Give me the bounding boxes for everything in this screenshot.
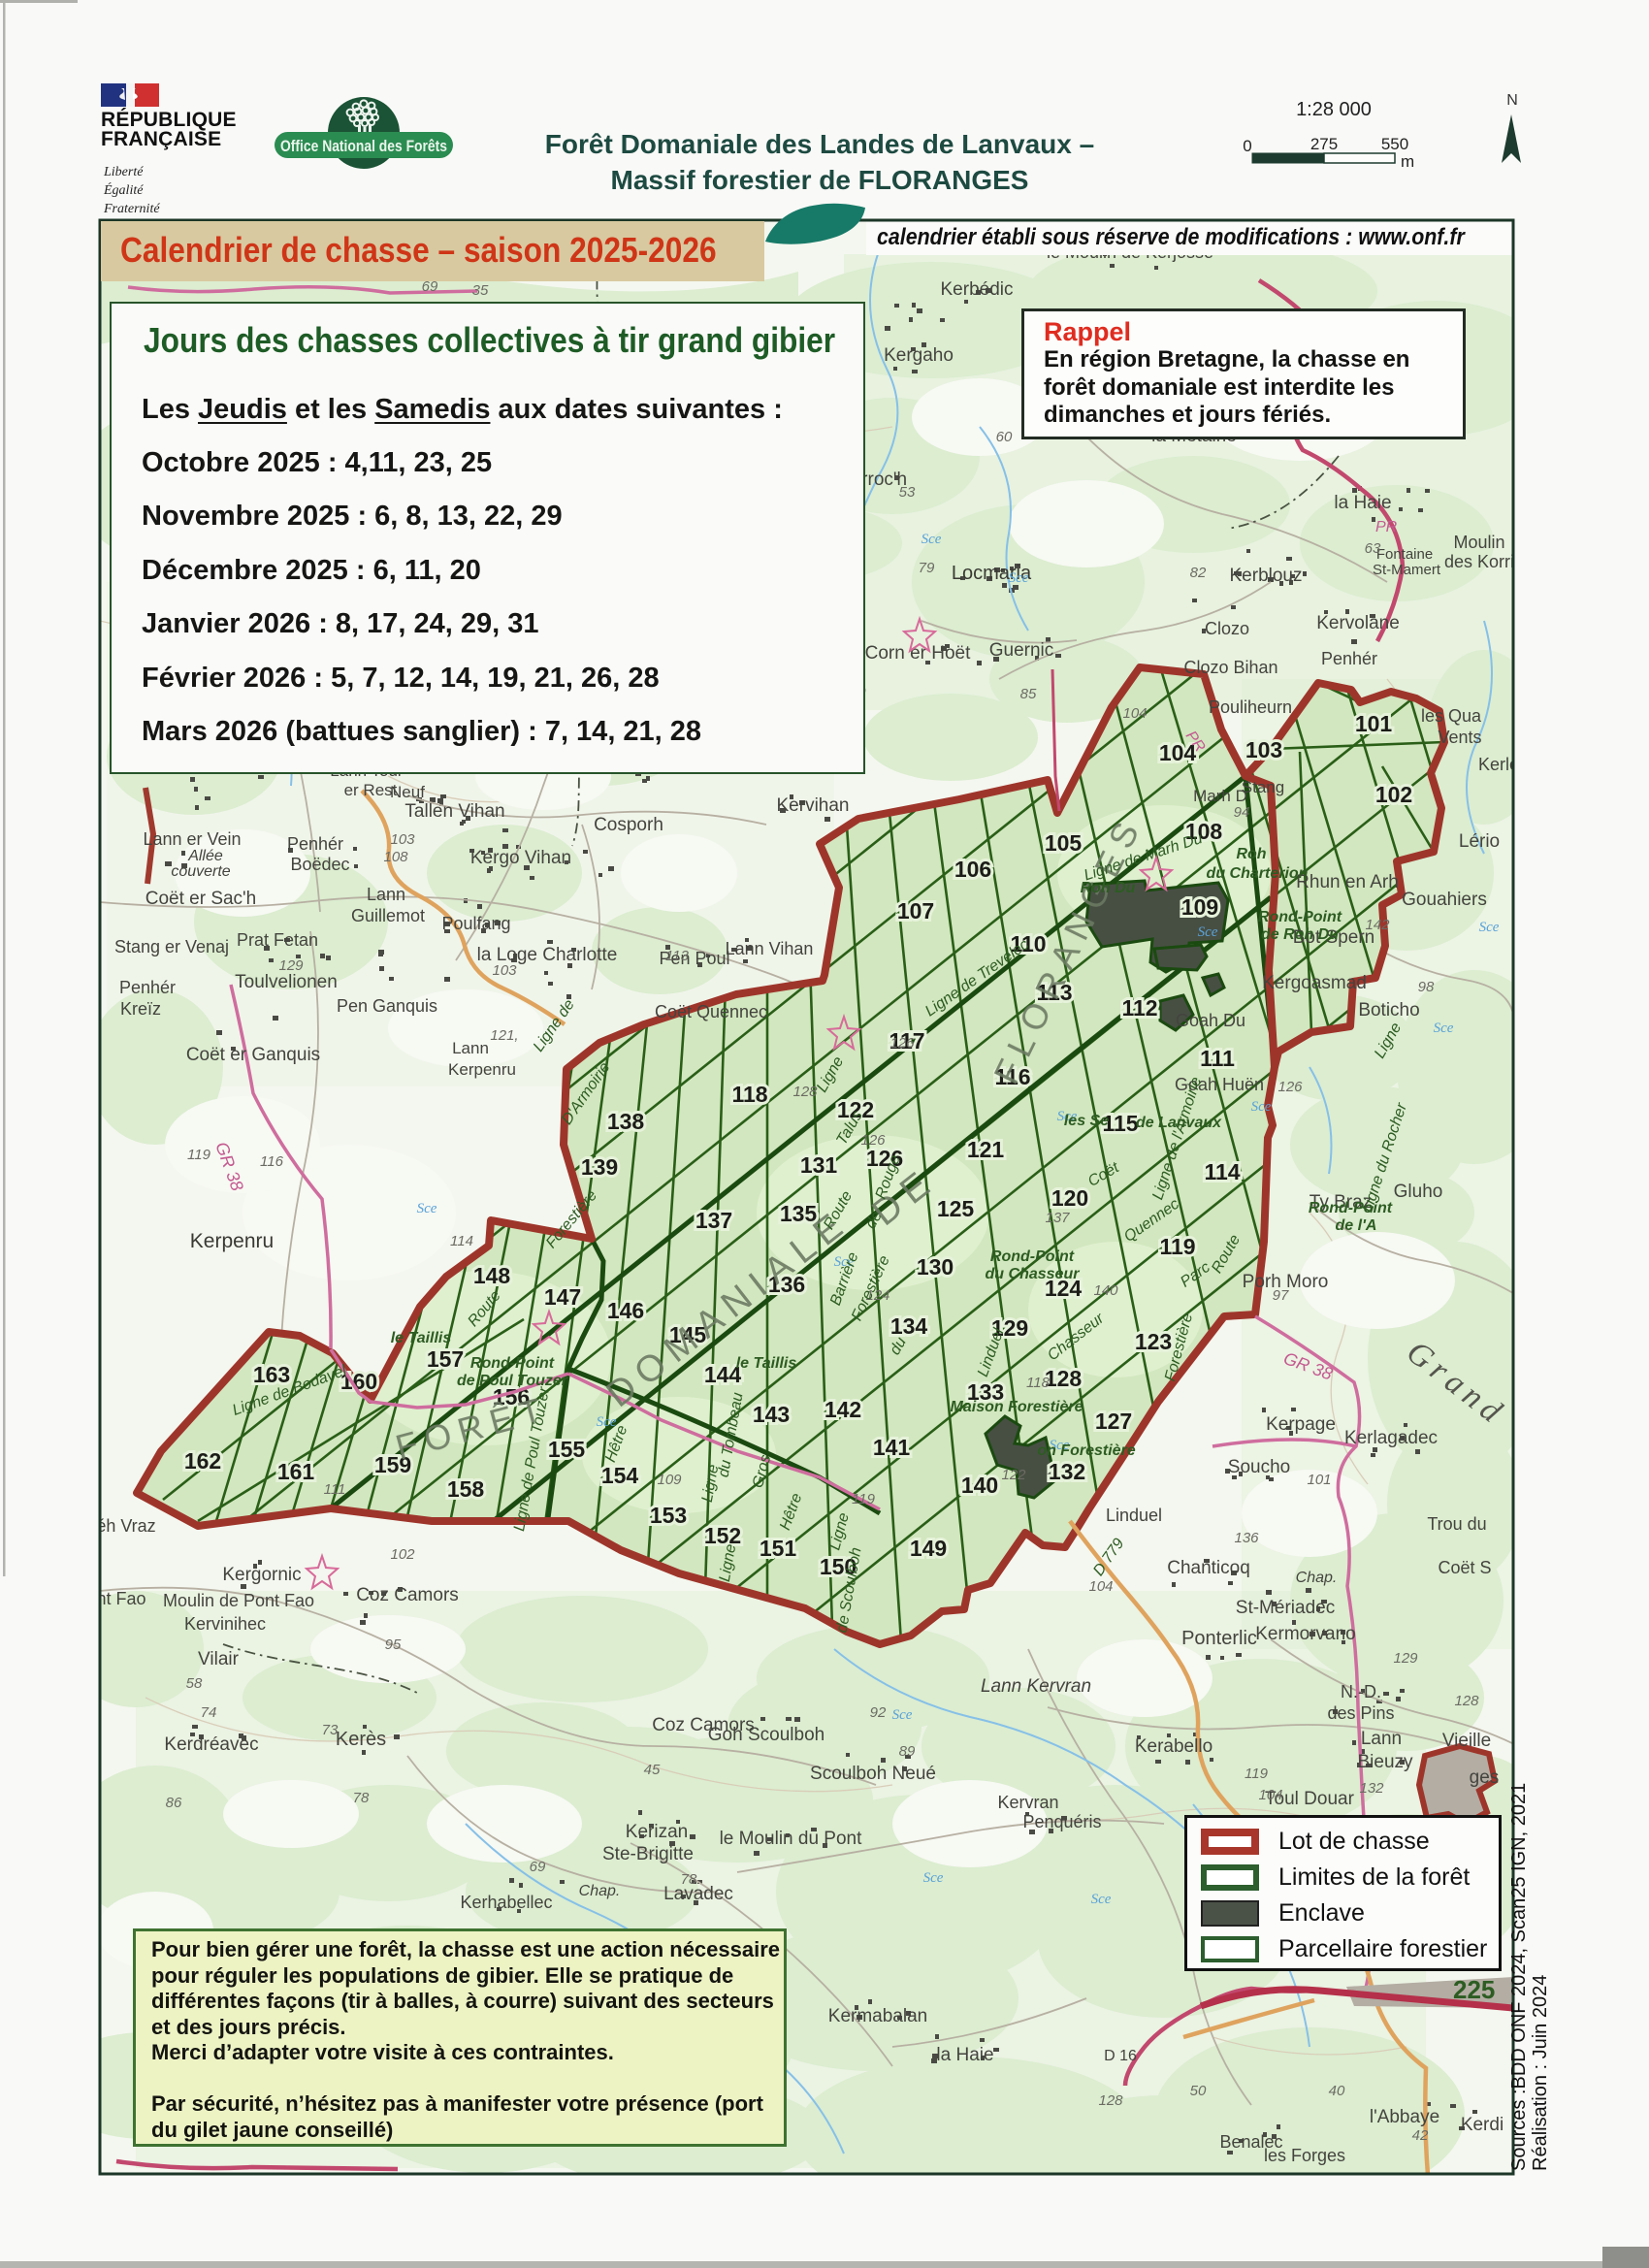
svg-text:éh Vraz: éh Vraz <box>96 1516 155 1536</box>
svg-text:le Taillis: le Taillis <box>391 1330 452 1346</box>
svg-text:Linduel: Linduel <box>1106 1506 1162 1525</box>
svg-text:50: 50 <box>1190 2083 1207 2099</box>
svg-text:58: 58 <box>186 1675 203 1692</box>
svg-text:Trou du: Trou du <box>1427 1514 1486 1534</box>
svg-text:ges: ges <box>1470 1767 1500 1788</box>
svg-text:103: 103 <box>390 831 415 848</box>
svg-text:225: 225 <box>1453 1975 1495 2004</box>
svg-text:Sce: Sce <box>1434 1021 1454 1036</box>
svg-text:la Haie: la Haie <box>1334 493 1391 513</box>
svg-text:Kergaho: Kergaho <box>884 345 954 366</box>
svg-text:Sce: Sce <box>417 1201 437 1216</box>
svg-text:le Moulin du Pont: le Moulin du Pont <box>720 1829 863 1849</box>
svg-text:Chap.: Chap. <box>1296 1570 1338 1586</box>
svg-text:161: 161 <box>277 1459 315 1484</box>
svg-text:154: 154 <box>601 1463 639 1488</box>
svg-text:Sce: Sce <box>1198 924 1218 940</box>
svg-text:D 16: D 16 <box>1104 2048 1137 2064</box>
svg-text:151: 151 <box>760 1536 797 1561</box>
svg-text:Lavadec: Lavadec <box>663 1884 733 1904</box>
svg-text:101: 101 <box>1355 711 1393 736</box>
svg-text:158: 158 <box>447 1476 485 1502</box>
svg-text:103: 103 <box>1245 737 1282 762</box>
svg-text:116: 116 <box>260 1153 284 1170</box>
svg-text:53: 53 <box>899 484 916 501</box>
svg-text:Lann: Lann <box>1361 1729 1402 1749</box>
svg-text:Sce: Sce <box>1479 920 1500 935</box>
svg-text:Kreïz: Kreïz <box>120 999 161 1019</box>
svg-text:Kergornic: Kergornic <box>222 1565 301 1585</box>
svg-text:Stang: Stang <box>1242 778 1284 796</box>
svg-text:162: 162 <box>184 1448 221 1474</box>
svg-text:l'Abbaye: l'Abbaye <box>1370 2107 1439 2127</box>
svg-text:Kerdi: Kerdi <box>1461 2115 1503 2135</box>
svg-text:Sce: Sce <box>921 532 942 547</box>
svg-text:140: 140 <box>1093 1282 1118 1299</box>
svg-text:119: 119 <box>852 1491 876 1507</box>
svg-text:Ponterlic: Ponterlic <box>1181 1628 1257 1649</box>
svg-text:42: 42 <box>1412 2127 1429 2144</box>
svg-text:138: 138 <box>607 1109 645 1134</box>
svg-text:63: 63 <box>1365 540 1381 557</box>
svg-text:147: 147 <box>544 1284 581 1310</box>
svg-text:les Qua: les Qua <box>1421 706 1482 726</box>
svg-text:Penhér: Penhér <box>287 834 343 854</box>
svg-text:109: 109 <box>1181 894 1218 920</box>
svg-text:Kerizan: Kerizan <box>626 1822 688 1842</box>
svg-text:Coz Camors: Coz Camors <box>356 1585 459 1605</box>
svg-text:128: 128 <box>1454 1693 1479 1709</box>
svg-text:126: 126 <box>860 1132 886 1149</box>
svg-text:Kerpage: Kerpage <box>1266 1414 1336 1435</box>
svg-text:Rhun en Arh: Rhun en Arh <box>1296 872 1399 892</box>
svg-text:Roh: Roh <box>1236 846 1266 862</box>
svg-text:Vilair: Vilair <box>198 1649 240 1669</box>
svg-text:Goh Scoulboh: Goh Scoulboh <box>708 1725 824 1745</box>
svg-text:Sce: Sce <box>1251 1099 1272 1115</box>
svg-text:de Lanvaux: de Lanvaux <box>1136 1115 1222 1131</box>
svg-text:Kerlagadec: Kerlagadec <box>1344 1428 1438 1448</box>
svg-text:129: 129 <box>1393 1650 1418 1667</box>
svg-text:157: 157 <box>427 1346 464 1372</box>
svg-text:97: 97 <box>1273 1287 1289 1304</box>
svg-text:de Roh Du: de Roh Du <box>1261 926 1339 943</box>
svg-text:Scoulboh Neué: Scoulboh Neué <box>810 1764 936 1784</box>
svg-text:Kerès: Kerès <box>336 1729 386 1750</box>
svg-text:Kerpenru: Kerpenru <box>448 1060 516 1079</box>
svg-text:Kervolane: Kervolane <box>1316 613 1400 633</box>
svg-text:Vieille: Vieille <box>1442 1731 1491 1751</box>
svg-text:Coët er Sac'h: Coët er Sac'h <box>145 889 257 909</box>
svg-text:78: 78 <box>681 1871 697 1888</box>
svg-text:Vents: Vents <box>1438 728 1481 747</box>
svg-text:127: 127 <box>1095 1409 1132 1434</box>
svg-text:Sce: Sce <box>1009 570 1029 586</box>
svg-text:Marh D: Marh D <box>1193 787 1247 805</box>
svg-text:73: 73 <box>322 1722 339 1738</box>
svg-text:Boëdec: Boëdec <box>290 855 349 874</box>
svg-text:des Pins: des Pins <box>1327 1703 1394 1723</box>
svg-text:les Forges: les Forges <box>1264 2146 1345 2165</box>
svg-text:Moulin: Moulin <box>1453 533 1504 552</box>
svg-text:106: 106 <box>954 857 991 882</box>
svg-text:Sce: Sce <box>892 1707 913 1723</box>
svg-text:111: 111 <box>324 1481 346 1498</box>
svg-text:Guernic: Guernic <box>989 640 1054 661</box>
svg-text:Lério: Lério <box>1459 831 1500 852</box>
svg-text:Rond-Point: Rond-Point <box>1258 909 1342 925</box>
svg-text:Gouahiers: Gouahiers <box>1402 890 1487 910</box>
svg-text:149: 149 <box>910 1536 947 1561</box>
svg-text:de Poul Touzer: de Poul Touzer <box>457 1373 568 1389</box>
svg-text:Bieuzy: Bieuzy <box>1357 1752 1413 1772</box>
svg-text:112: 112 <box>1121 995 1157 1021</box>
svg-text:Kervinihec: Kervinihec <box>184 1614 266 1634</box>
svg-text:Kerblouz: Kerblouz <box>1230 566 1303 586</box>
svg-text:Lann er Vein: Lann er Vein <box>143 829 241 849</box>
svg-text:137: 137 <box>695 1208 732 1233</box>
svg-text:on Forestière: on Forestière <box>1037 1442 1135 1459</box>
svg-text:142: 142 <box>1365 917 1390 933</box>
svg-text:104: 104 <box>1088 1578 1113 1595</box>
svg-text:98: 98 <box>1418 979 1435 995</box>
svg-text:St-Mamert: St-Mamert <box>1373 562 1441 578</box>
svg-text:Lann Vihan: Lann Vihan <box>726 939 814 958</box>
svg-text:Kervihan: Kervihan <box>777 795 850 816</box>
svg-text:107: 107 <box>897 898 934 923</box>
svg-text:PR: PR <box>1375 519 1398 535</box>
svg-text:148: 148 <box>473 1263 511 1288</box>
svg-text:Pen Ganquis: Pen Ganquis <box>337 996 437 1016</box>
svg-text:Kergoasmad: Kergoasmad <box>1262 973 1367 993</box>
svg-text:Sce: Sce <box>1091 1892 1112 1907</box>
svg-text:111: 111 <box>1200 1046 1235 1071</box>
svg-text:45: 45 <box>644 1762 661 1778</box>
svg-text:121,: 121, <box>490 1027 518 1044</box>
svg-text:137: 137 <box>1045 1210 1070 1226</box>
svg-text:du Charterion: du Charterion <box>1207 865 1309 882</box>
svg-text:Soucho: Soucho <box>1228 1457 1290 1477</box>
svg-text:94: 94 <box>1234 804 1250 821</box>
svg-text:Maison Forestière: Maison Forestière <box>951 1399 1083 1415</box>
svg-text:Chap.: Chap. <box>579 1883 621 1899</box>
svg-text:le Taillis: le Taillis <box>736 1355 797 1372</box>
svg-text:les Se: les Se <box>1064 1113 1109 1129</box>
svg-text:Fontaine: Fontaine <box>1376 546 1433 563</box>
svg-text:119: 119 <box>1159 1234 1195 1259</box>
svg-text:Coët er Ganquis: Coët er Ganquis <box>186 1045 320 1065</box>
svg-text:Sources :BDD ONF 2024, Scan25: Sources :BDD ONF 2024, Scan25 IGN, 2021 <box>1508 1783 1530 2171</box>
svg-text:Rond-Point: Rond-Point <box>990 1248 1075 1265</box>
svg-text:146: 146 <box>607 1298 644 1323</box>
svg-text:Chanticoq: Chanticoq <box>1167 1558 1250 1578</box>
svg-text:Cosporh: Cosporh <box>594 815 663 835</box>
svg-text:126: 126 <box>1277 1079 1303 1095</box>
svg-text:121: 121 <box>967 1137 1005 1162</box>
svg-text:Penhér: Penhér <box>1321 649 1377 668</box>
svg-text:113: 113 <box>665 948 690 964</box>
svg-text:119: 119 <box>1245 1766 1269 1782</box>
svg-text:153: 153 <box>650 1503 687 1528</box>
svg-text:Kerabello: Kerabello <box>1135 1736 1212 1757</box>
svg-text:35: 35 <box>472 282 489 299</box>
svg-text:Toulvelionen: Toulvelionen <box>235 972 338 992</box>
svg-text:Kervran: Kervran <box>997 1793 1058 1812</box>
svg-text:126: 126 <box>889 1035 915 1052</box>
svg-text:Pouliheurn: Pouliheurn <box>1209 697 1292 717</box>
svg-text:101: 101 <box>1307 1472 1331 1488</box>
svg-text:Prat Fetan: Prat Fetan <box>237 930 318 950</box>
svg-text:128: 128 <box>1045 1366 1083 1391</box>
svg-text:Kermorvano: Kermorvano <box>1255 1624 1356 1644</box>
svg-text:105: 105 <box>1045 830 1083 856</box>
svg-text:Roh Du: Roh Du <box>1081 880 1136 896</box>
svg-text:102: 102 <box>1375 782 1412 807</box>
svg-text:139: 139 <box>581 1154 618 1180</box>
svg-text:Clozo Bihan: Clozo Bihan <box>1183 658 1277 677</box>
svg-text:114: 114 <box>450 1233 473 1249</box>
svg-text:Goah Du: Goah Du <box>1176 1011 1245 1030</box>
svg-text:Kerpenru: Kerpenru <box>190 1230 274 1252</box>
svg-text:Penquéris: Penquéris <box>1022 1812 1101 1831</box>
svg-text:Réalisation : Juin 2024: Réalisation : Juin 2024 <box>1530 1975 1551 2171</box>
svg-text:Rond-Point: Rond-Point <box>1309 1200 1393 1216</box>
svg-text:118: 118 <box>731 1082 767 1107</box>
svg-text:119: 119 <box>187 1147 211 1163</box>
svg-text:114: 114 <box>1204 1159 1240 1184</box>
svg-text:du Chasseur: du Chasseur <box>986 1266 1081 1282</box>
svg-text:131: 131 <box>800 1152 838 1178</box>
svg-text:132: 132 <box>1049 1459 1085 1484</box>
svg-text:143: 143 <box>753 1402 790 1427</box>
svg-text:er Rest: er Rest <box>344 781 398 799</box>
svg-text:123: 123 <box>1135 1329 1172 1354</box>
svg-text:108: 108 <box>383 849 408 865</box>
svg-text:92: 92 <box>870 1704 887 1721</box>
svg-text:132: 132 <box>1359 1780 1384 1797</box>
svg-text:nt Fao: nt Fao <box>96 1589 145 1608</box>
svg-text:40: 40 <box>1329 2083 1345 2099</box>
svg-text:74: 74 <box>201 1704 217 1721</box>
svg-text:Allée: Allée <box>187 848 223 864</box>
svg-text:Stang er Venaj: Stang er Venaj <box>114 937 229 956</box>
svg-text:N.-D.: N.-D. <box>1341 1682 1381 1701</box>
svg-text:140: 140 <box>961 1473 998 1498</box>
svg-text:Kerdréavec: Kerdréavec <box>164 1734 258 1755</box>
svg-text:Kermabalan: Kermabalan <box>828 2006 927 2026</box>
svg-text:la Haie: la Haie <box>936 2045 993 2065</box>
svg-text:129: 129 <box>278 957 304 974</box>
svg-text:St-Mériadec: St-Mériadec <box>1236 1598 1335 1618</box>
svg-text:142: 142 <box>824 1397 861 1422</box>
svg-text:Penhér: Penhér <box>119 978 176 997</box>
svg-text:120: 120 <box>1051 1185 1088 1211</box>
svg-text:109: 109 <box>657 1472 682 1488</box>
svg-text:102: 102 <box>390 1546 415 1563</box>
svg-text:Coët Quennec: Coët Quennec <box>655 1002 767 1021</box>
svg-text:Kerbédic: Kerbédic <box>941 279 1014 300</box>
svg-text:69: 69 <box>530 1859 546 1875</box>
svg-text:103: 103 <box>492 962 517 979</box>
svg-text:Boticho: Boticho <box>1358 1000 1419 1021</box>
svg-text:78: 78 <box>353 1790 370 1806</box>
svg-text:104: 104 <box>1122 705 1147 722</box>
svg-text:Tallen Vihan: Tallen Vihan <box>404 801 504 822</box>
svg-text:89: 89 <box>899 1743 916 1760</box>
svg-text:Kerhabellec: Kerhabellec <box>460 1893 552 1912</box>
svg-text:Ste-Brigitte: Ste-Brigitte <box>602 1844 694 1864</box>
svg-text:85: 85 <box>1020 686 1037 702</box>
svg-text:Lann: Lann <box>452 1039 489 1057</box>
svg-text:122: 122 <box>1001 1467 1026 1483</box>
svg-text:Rond-Point: Rond-Point <box>470 1355 555 1372</box>
svg-text:Gluho: Gluho <box>1394 1182 1443 1202</box>
svg-text:Guillemot: Guillemot <box>351 906 425 925</box>
svg-text:125: 125 <box>937 1196 975 1221</box>
svg-text:Coët S: Coët S <box>1438 1558 1491 1577</box>
svg-text:couverte: couverte <box>171 863 230 880</box>
svg-text:141: 141 <box>873 1435 911 1460</box>
svg-text:Lann Kervran: Lann Kervran <box>981 1676 1091 1697</box>
svg-text:104: 104 <box>1258 1787 1282 1803</box>
svg-text:86: 86 <box>166 1795 182 1811</box>
svg-text:155: 155 <box>548 1437 586 1462</box>
svg-text:128: 128 <box>1098 2092 1123 2109</box>
svg-text:Lann: Lann <box>367 885 405 904</box>
svg-text:79: 79 <box>919 560 935 576</box>
svg-text:60: 60 <box>996 429 1013 445</box>
svg-text:de l'A: de l'A <box>1336 1217 1377 1234</box>
svg-text:95: 95 <box>385 1636 402 1653</box>
svg-text:Moulin de Pont Fao: Moulin de Pont Fao <box>163 1591 314 1610</box>
svg-text:136: 136 <box>1234 1530 1259 1546</box>
svg-text:82: 82 <box>1190 565 1207 581</box>
svg-text:118: 118 <box>1026 1375 1051 1391</box>
svg-text:Poulfang: Poulfang <box>441 914 510 933</box>
svg-text:130: 130 <box>917 1254 954 1280</box>
svg-text:Sce: Sce <box>923 1870 944 1886</box>
svg-text:Kergo Vihan: Kergo Vihan <box>470 848 571 868</box>
svg-text:Clozo: Clozo <box>1205 619 1249 638</box>
